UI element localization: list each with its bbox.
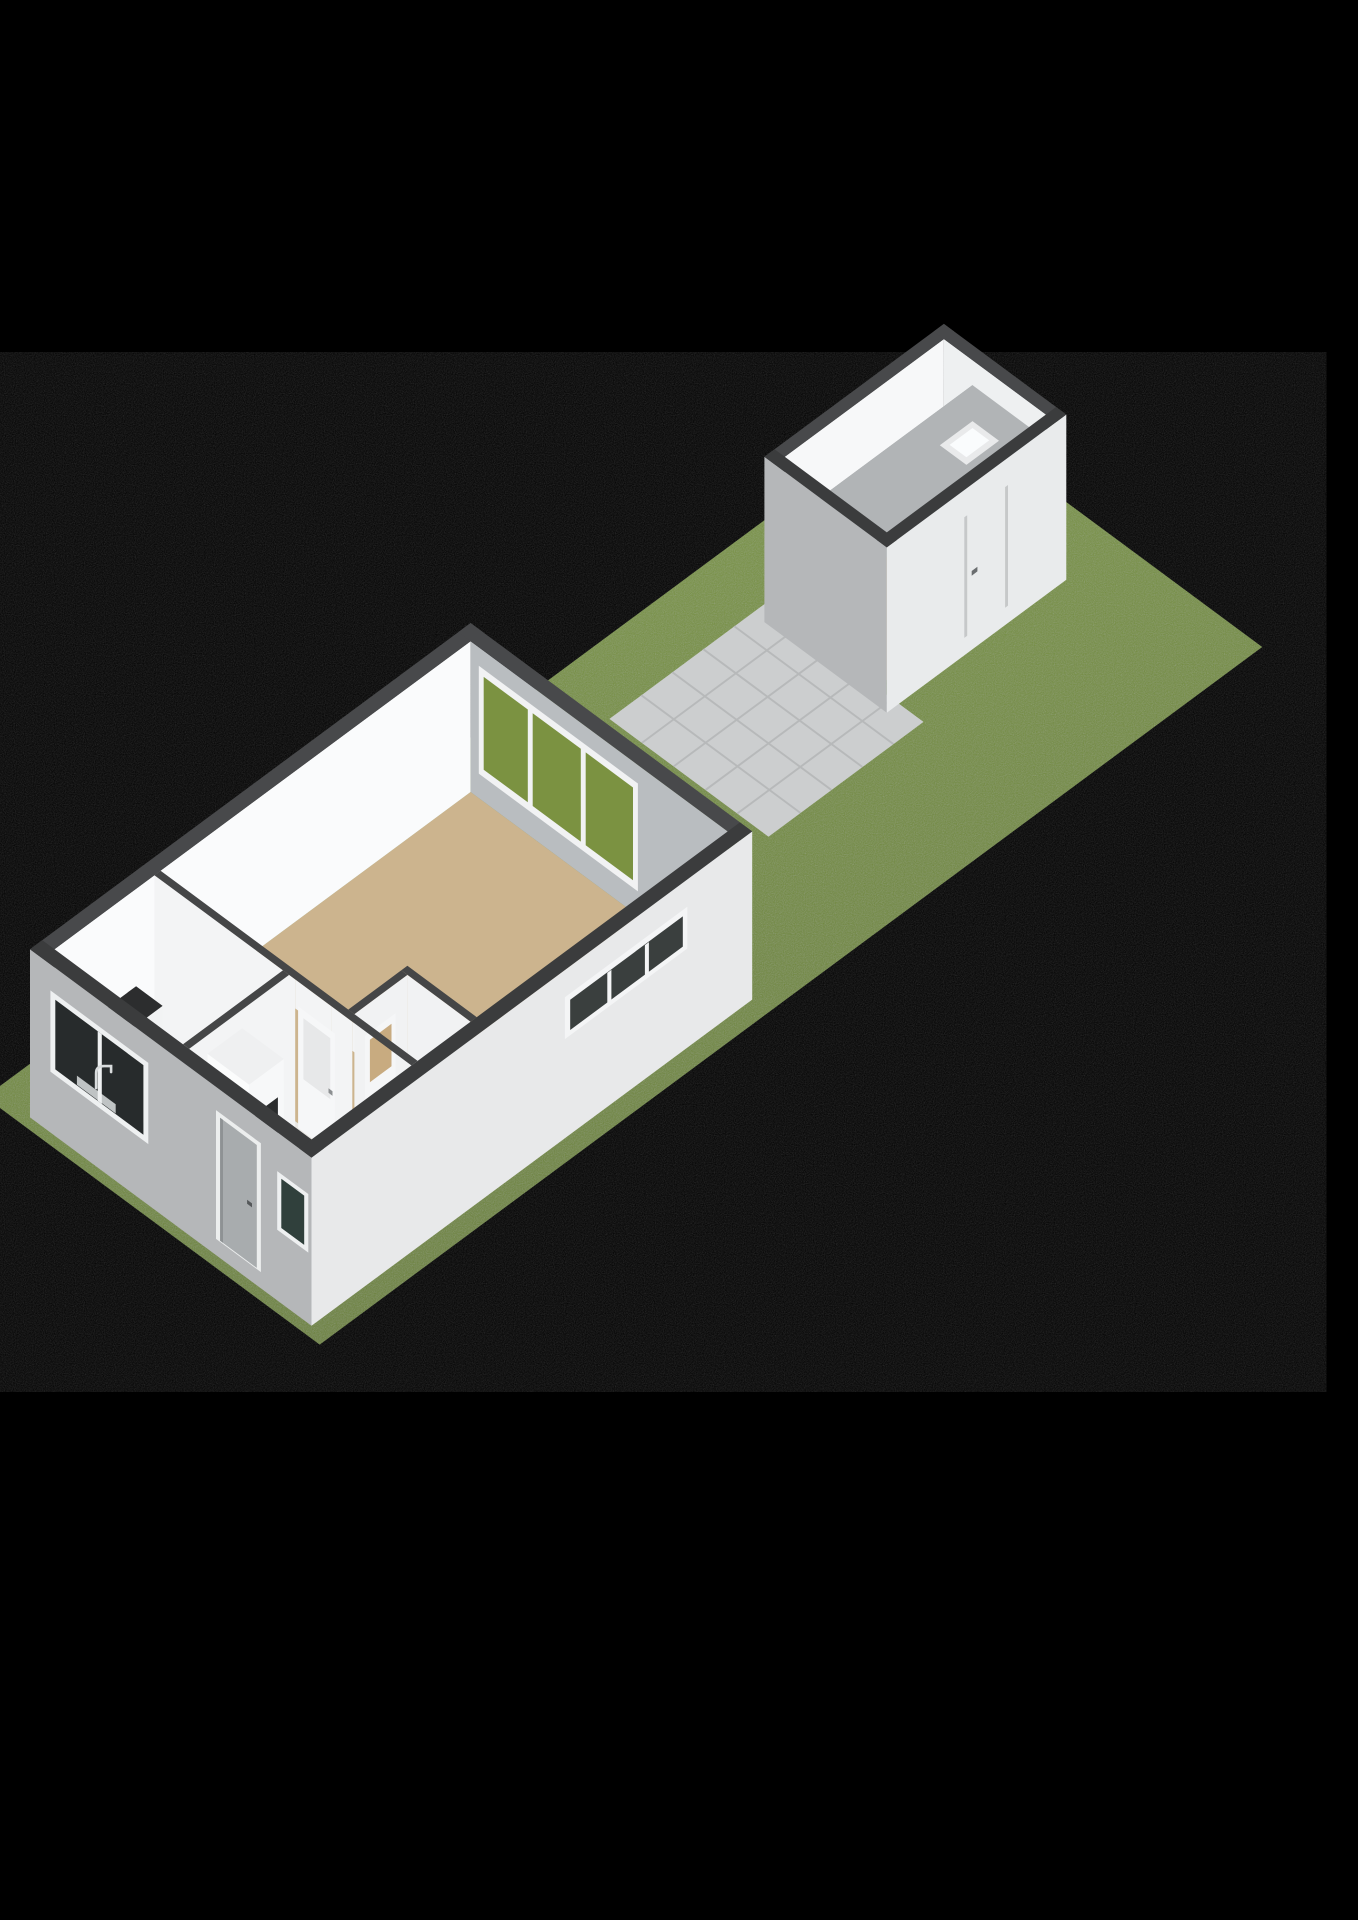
- floorplan-stage: [0, 0, 1358, 1920]
- se-band-window-mullion-1: [607, 970, 611, 1003]
- front-door-edge-shadow: [220, 1118, 223, 1243]
- garage-door-seam-left: [964, 515, 967, 638]
- garage-door-seam-right: [1005, 485, 1008, 608]
- se-band-window-mullion-2: [645, 942, 649, 975]
- floorplan-svg: [0, 0, 1358, 1920]
